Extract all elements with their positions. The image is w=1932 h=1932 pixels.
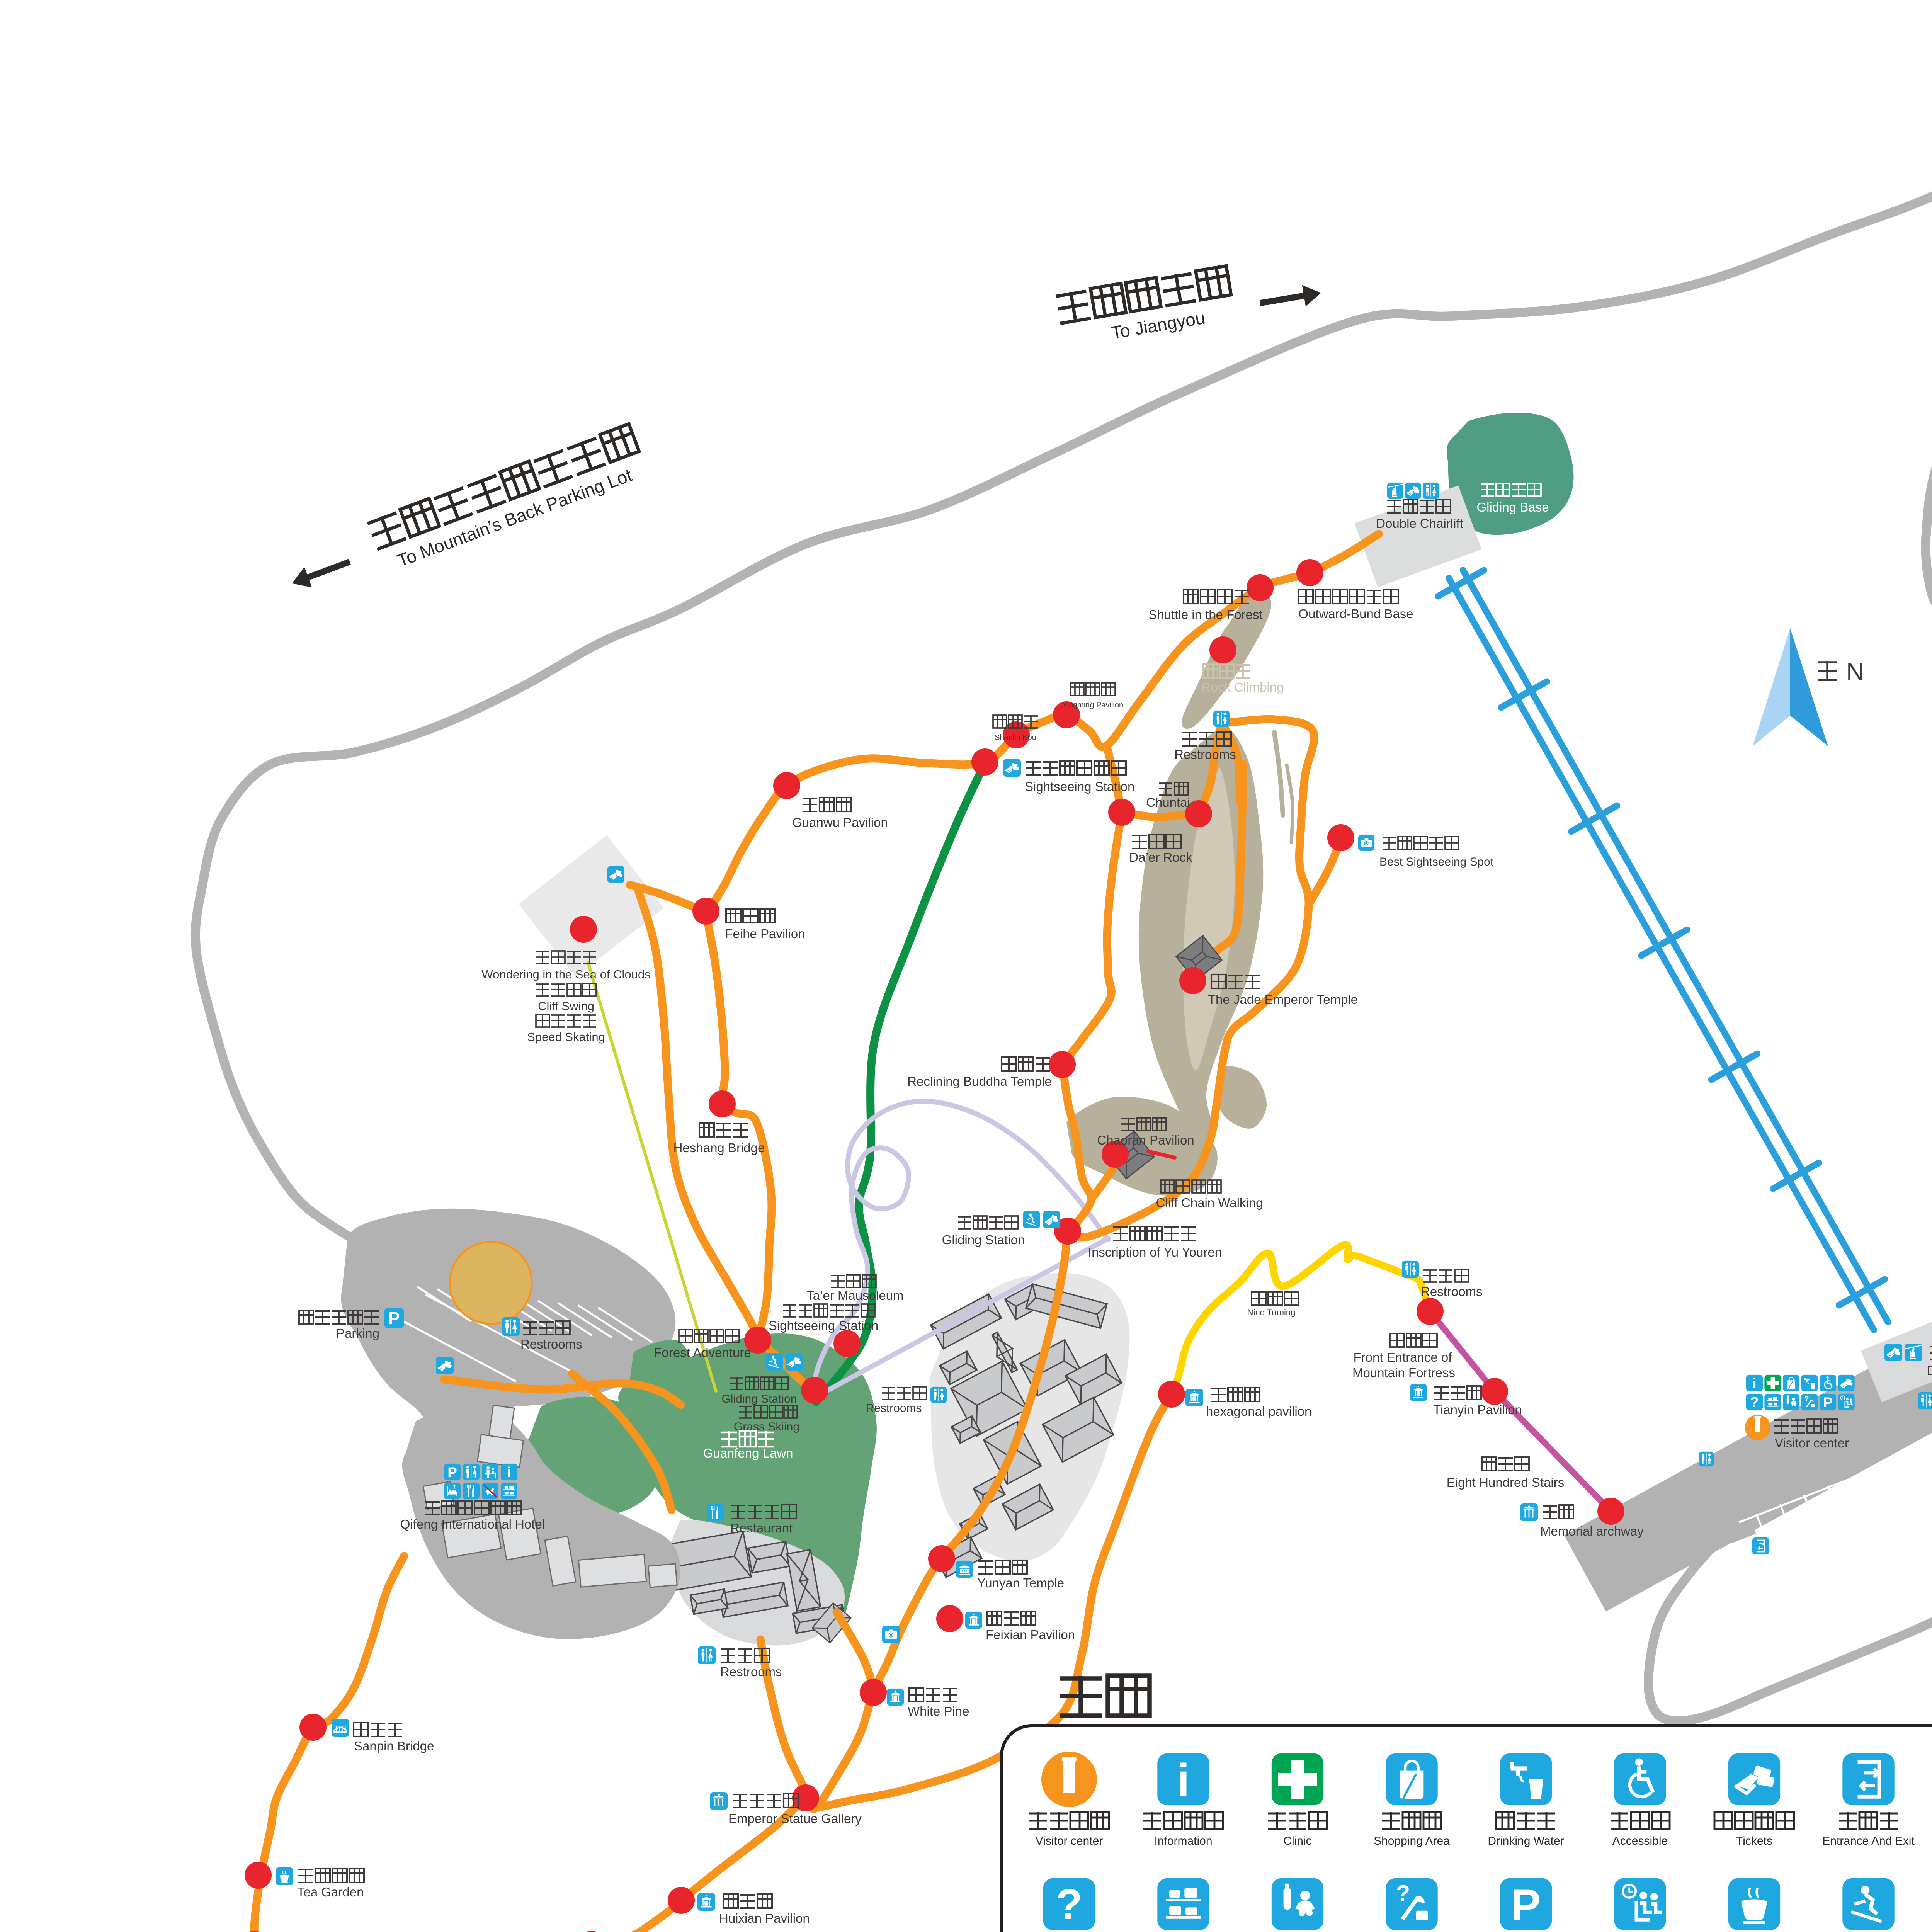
- svg-text:Restrooms: Restrooms: [520, 1337, 582, 1351]
- svg-text:Restrooms: Restrooms: [720, 1665, 782, 1679]
- svg-text:Eight Hundred Stairs: Eight Hundred Stairs: [1447, 1475, 1565, 1490]
- svg-text:Rock Climbing: Rock Climbing: [1202, 680, 1284, 694]
- svg-text:Double Chairlift: Double Chairlift: [1927, 1363, 1932, 1378]
- svg-text:Heshang Bridge: Heshang Bridge: [673, 1141, 765, 1155]
- svg-text:White Pine: White Pine: [908, 1704, 969, 1718]
- svg-text:Speed Skating: Speed Skating: [527, 1030, 605, 1044]
- svg-text:Huixian Pavilion: Huixian Pavilion: [719, 1911, 810, 1925]
- svg-text:Restrooms: Restrooms: [866, 1402, 922, 1415]
- svg-text:Sanpin Bridge: Sanpin Bridge: [354, 1739, 434, 1753]
- svg-text:hexagonal pavilion: hexagonal pavilion: [1206, 1404, 1311, 1418]
- svg-text:Chuntai: Chuntai: [1146, 795, 1190, 810]
- svg-text:Visitor center: Visitor center: [1775, 1436, 1849, 1450]
- svg-text:Tea Garden: Tea Garden: [297, 1885, 364, 1899]
- svg-text:Shopping Area: Shopping Area: [1374, 1835, 1450, 1847]
- svg-text:Memorial archway: Memorial archway: [1540, 1524, 1644, 1538]
- svg-text:Forest Adventure: Forest Adventure: [654, 1345, 751, 1360]
- svg-text:Yingming Pavilion: Yingming Pavilion: [1062, 701, 1123, 709]
- svg-text:Cliff Chain Walking: Cliff Chain Walking: [1156, 1196, 1263, 1210]
- svg-text:Da’er Rock: Da’er Rock: [1129, 850, 1192, 864]
- svg-text:Information: Information: [1154, 1835, 1212, 1847]
- svg-text:Inscription of Yu Youren: Inscription of Yu Youren: [1088, 1245, 1222, 1259]
- svg-text:Tianyin Pavilion: Tianyin Pavilion: [1433, 1403, 1522, 1417]
- svg-text:The Jade Emperor Temple: The Jade Emperor Temple: [1208, 992, 1358, 1007]
- svg-text:Restaurant: Restaurant: [730, 1521, 793, 1535]
- svg-text:Ta’er Mausoleum: Ta’er Mausoleum: [806, 1288, 903, 1303]
- svg-text:Qifeng International Hotel: Qifeng International Hotel: [400, 1517, 545, 1531]
- svg-text:Clinic: Clinic: [1283, 1835, 1311, 1847]
- svg-text:Chaoran Pavilion: Chaoran Pavilion: [1097, 1133, 1194, 1147]
- svg-text:Parking: Parking: [336, 1326, 379, 1340]
- svg-text:Wondering in the Sea of Clouds: Wondering in the Sea of Clouds: [481, 968, 650, 981]
- svg-text:Drinking Water: Drinking Water: [1488, 1835, 1564, 1847]
- svg-text:Double Chairlift: Double Chairlift: [1376, 516, 1463, 531]
- svg-text:Nine Turning: Nine Turning: [1247, 1308, 1296, 1317]
- svg-text:Gliding Station: Gliding Station: [721, 1393, 797, 1405]
- svg-text:Mountain Fortress: Mountain Fortress: [1352, 1366, 1455, 1380]
- svg-text:Feihe Pavilion: Feihe Pavilion: [725, 927, 805, 941]
- svg-text:Shuttle in the Forest: Shuttle in the Forest: [1148, 607, 1262, 622]
- svg-text:Gliding Station: Gliding Station: [942, 1233, 1025, 1247]
- svg-text:Reclining Buddha Temple: Reclining Buddha Temple: [907, 1074, 1052, 1088]
- svg-text:Sightseeing Station: Sightseeing Station: [1025, 779, 1134, 794]
- svg-text:Visitor center: Visitor center: [1036, 1835, 1103, 1847]
- svg-text:Emperor Statue Gallery: Emperor Statue Gallery: [728, 1811, 862, 1826]
- svg-text:Entrance And Exit: Entrance And Exit: [1822, 1835, 1915, 1847]
- svg-text:Guanfeng Lawn: Guanfeng Lawn: [703, 1446, 793, 1460]
- svg-text:Restrooms: Restrooms: [1174, 747, 1236, 762]
- svg-text:Best Sightseeing Spot: Best Sightseeing Spot: [1379, 855, 1494, 868]
- svg-text:Shanlin Kou: Shanlin Kou: [995, 733, 1036, 742]
- svg-text:Guanwu Pavilion: Guanwu Pavilion: [792, 815, 888, 830]
- svg-text:Tickets: Tickets: [1736, 1835, 1772, 1847]
- svg-text:Cliff Swing: Cliff Swing: [538, 999, 594, 1013]
- svg-text:N: N: [1846, 658, 1864, 685]
- svg-text:Gliding Base: Gliding Base: [1476, 500, 1549, 514]
- svg-text:Feixian Pavilion: Feixian Pavilion: [986, 1628, 1075, 1642]
- svg-text:Restrooms: Restrooms: [1421, 1284, 1483, 1299]
- svg-text:Accessible: Accessible: [1612, 1835, 1668, 1847]
- svg-text:Front Entrance of: Front Entrance of: [1354, 1350, 1452, 1364]
- svg-text:Outward-Bund Base: Outward-Bund Base: [1298, 607, 1413, 621]
- svg-text:Sightseeing Station: Sightseeing Station: [769, 1318, 878, 1333]
- svg-text:Yunyan Temple: Yunyan Temple: [977, 1576, 1064, 1590]
